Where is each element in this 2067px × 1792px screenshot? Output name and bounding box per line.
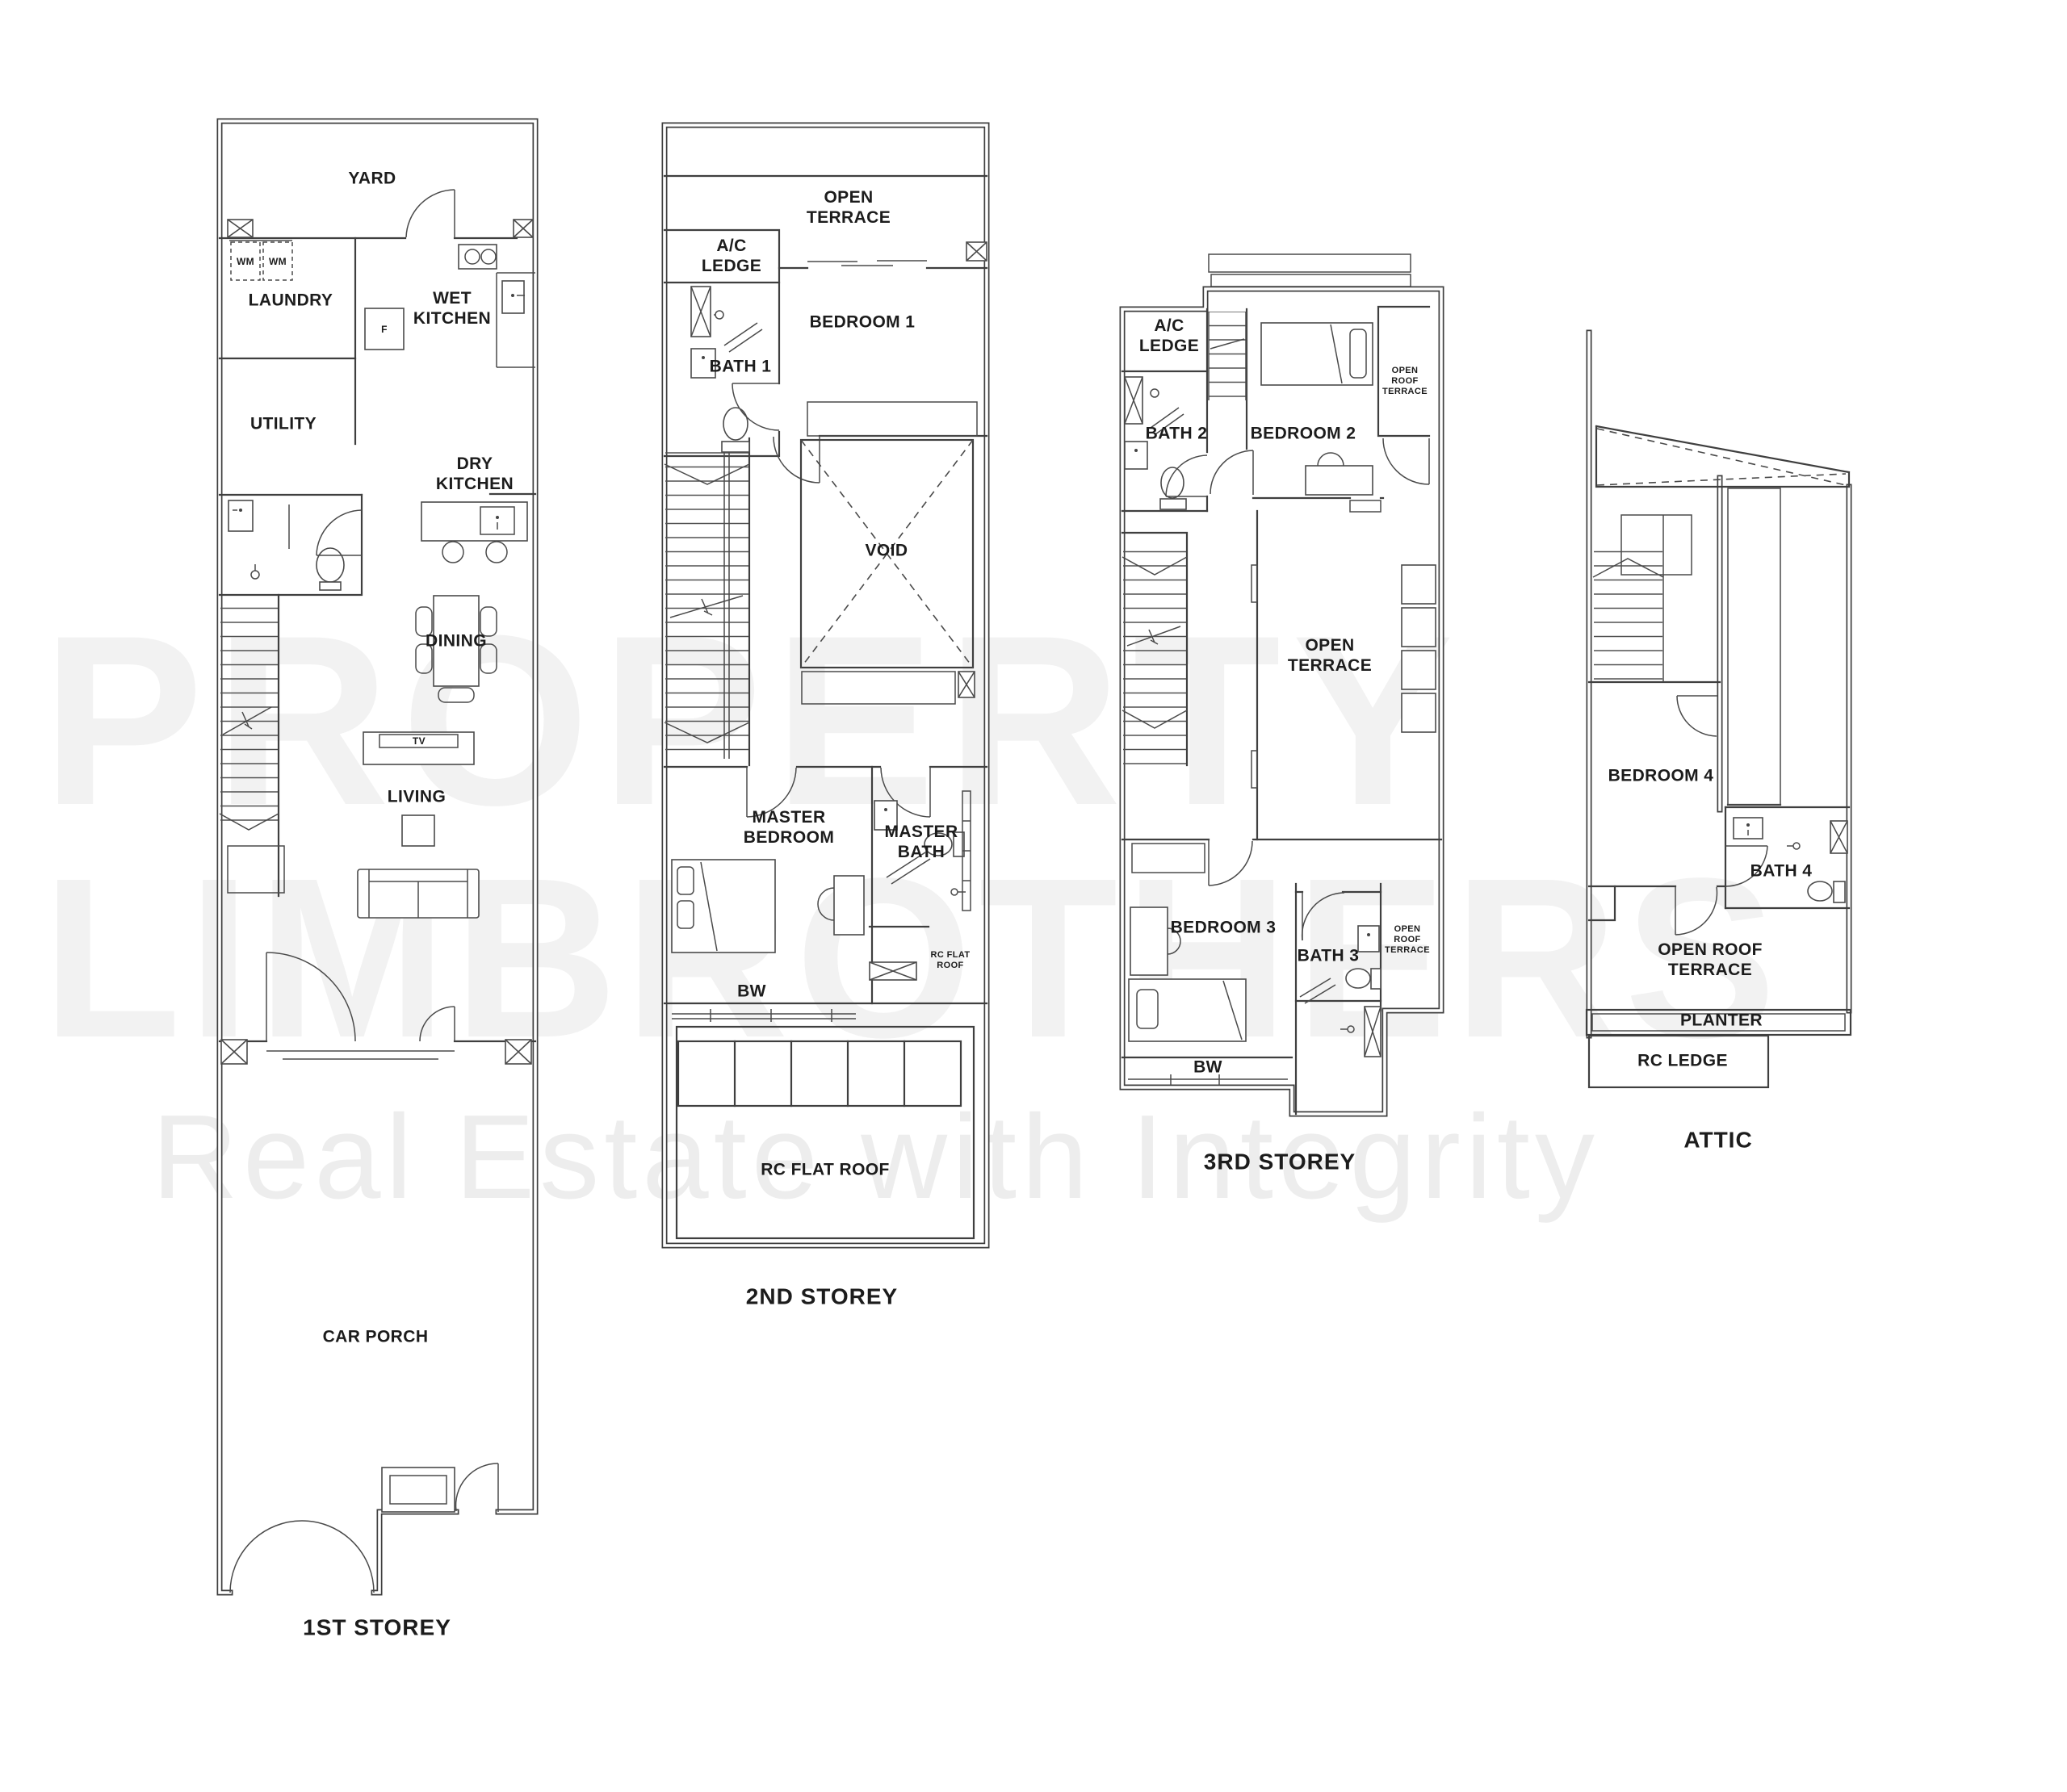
label-bw-2: BW [737, 982, 766, 1003]
floorplan-page: { "document": { "type": "floor-plan-draw… [0, 0, 2067, 1792]
label-open-roof-terrace-bottom: OPEN ROOF TERRACE [1385, 924, 1430, 957]
bedroom2-furniture [1261, 323, 1381, 512]
pergola-beams [678, 1041, 961, 1106]
label-dry-kitchen: DRY KITCHEN [436, 454, 514, 495]
label-wet-kitchen: WET KITCHEN [413, 289, 491, 329]
terrace-railing [1209, 254, 1411, 287]
label-open-roof-terrace-attic: OPEN ROOF TERRACE [1658, 940, 1763, 981]
dry-kitchen-island [421, 502, 527, 563]
label-bath2: BATH 2 [1146, 425, 1208, 445]
yard-door [406, 190, 455, 238]
bedroom2-door [1210, 450, 1253, 495]
staircase-to-attic [1209, 312, 1246, 400]
terrace-screen [807, 261, 927, 266]
staircase-attic [1593, 515, 1692, 682]
label-wm2: WM [269, 256, 287, 267]
label-yard: YARD [348, 170, 396, 190]
label-bedroom4: BEDROOM 4 [1608, 767, 1714, 787]
master-bedroom-furniture [672, 767, 864, 953]
caption-second-storey: 2ND STOREY [746, 1283, 898, 1309]
label-ac-ledge-2: A/C LEDGE [702, 237, 761, 277]
bedroom1-wardrobe [807, 402, 977, 436]
label-wm1: WM [237, 256, 254, 267]
label-open-terrace-3: OPEN TERRACE [1288, 636, 1372, 676]
staircase-third [1122, 539, 1187, 765]
label-living: LIVING [388, 788, 446, 808]
label-fridge: F [381, 324, 388, 335]
label-bedroom1: BEDROOM 1 [810, 313, 916, 333]
bedroom3-furniture [1129, 839, 1252, 1041]
car-porch-details [230, 1463, 498, 1593]
floorplan-line-art [0, 0, 2067, 1792]
label-bedroom2: BEDROOM 2 [1251, 425, 1356, 445]
bedroom4-doors [1675, 696, 1717, 935]
label-laundry: LAUNDRY [249, 291, 333, 312]
label-dining: DINING [426, 632, 487, 652]
roof-terrace-bottom-details [1340, 1007, 1381, 1057]
bw-window-band [672, 1009, 856, 1022]
label-ac-ledge-3: A/C LEDGE [1139, 316, 1199, 357]
caption-third-storey: 3RD STOREY [1204, 1148, 1356, 1174]
bedroom1-door [774, 436, 820, 483]
entrance-doors [266, 953, 455, 1059]
terrace-planters [1402, 565, 1436, 732]
label-bath1: BATH 1 [710, 358, 772, 378]
column-boxes-second [870, 242, 987, 980]
label-car-porch: CAR PORCH [323, 1328, 429, 1348]
roof-louvers [1728, 488, 1780, 805]
label-master-bath: MASTER BATH [884, 823, 958, 863]
label-utility: UTILITY [250, 415, 317, 435]
roof-terrace-top-door [1383, 438, 1429, 484]
caption-first-storey: 1ST STOREY [303, 1614, 451, 1640]
living-furniture [358, 815, 479, 918]
label-planter: PLANTER [1680, 1011, 1763, 1032]
label-open-roof-terrace-top: OPEN ROOF TERRACE [1382, 366, 1428, 398]
staircase-first [220, 604, 284, 893]
bath4-fixtures [1725, 818, 1847, 902]
staircase-second [665, 446, 749, 760]
label-master-bedroom: MASTER BEDROOM [744, 808, 834, 848]
caption-attic: ATTIC [1683, 1126, 1752, 1153]
label-bedroom3: BEDROOM 3 [1171, 919, 1277, 939]
label-bath3: BATH 3 [1298, 947, 1360, 967]
label-open-terrace-2: OPEN TERRACE [807, 188, 891, 228]
label-rc-flat-roof: RC FLAT ROOF [761, 1161, 890, 1181]
void-area [801, 440, 973, 704]
label-rc-flat-roof-small: RC FLAT ROOF [930, 950, 970, 971]
label-bw-3: BW [1193, 1058, 1222, 1078]
label-tv: TV [413, 735, 426, 747]
second-storey-plan [665, 125, 987, 1246]
wc-fixtures [229, 500, 362, 590]
label-void: VOID [866, 542, 908, 562]
label-bath4: BATH 4 [1750, 862, 1813, 882]
first-storey-plan [220, 121, 535, 1593]
label-rc-ledge: RC LEDGE [1637, 1052, 1728, 1072]
